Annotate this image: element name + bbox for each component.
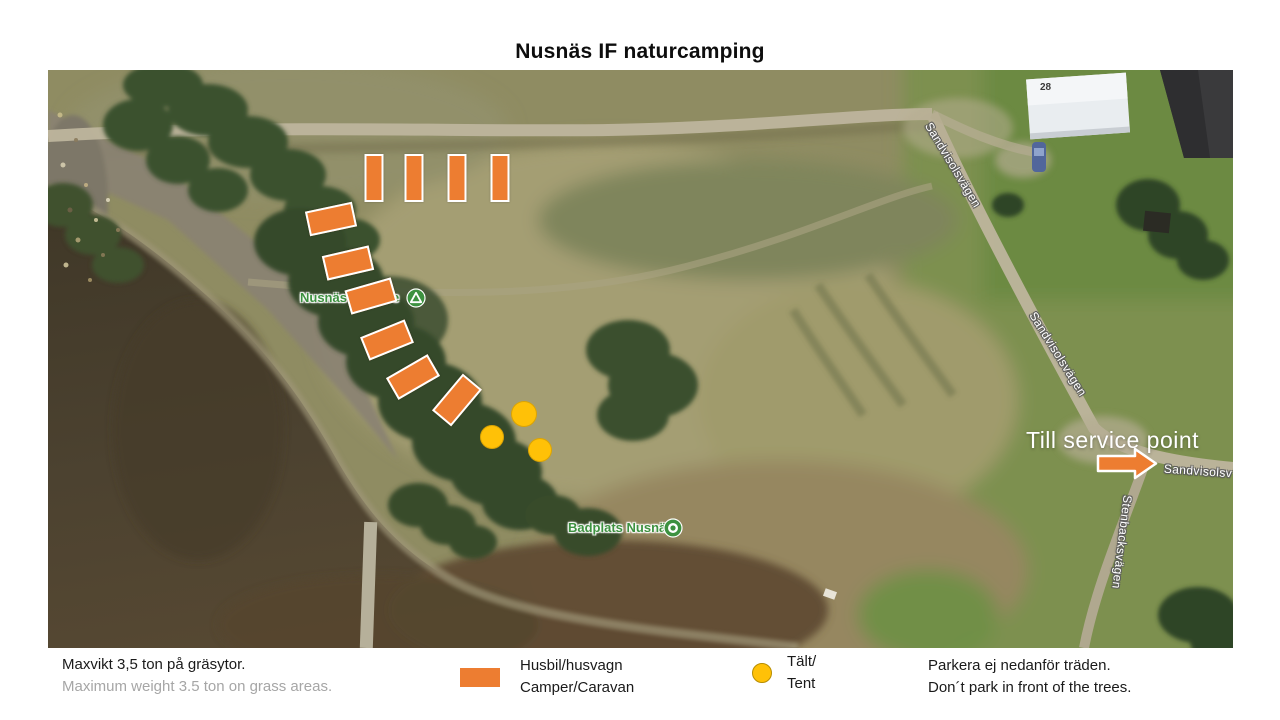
camper-spot [491, 154, 510, 202]
service-point-arrow-icon [1088, 442, 1168, 486]
legend-tent-sv: Tält/ [787, 651, 816, 673]
legend: Maxvikt 3,5 ton på gräsytor. Maximum wei… [0, 648, 1280, 720]
page-title: Nusnäs IF naturcamping [0, 40, 1280, 64]
legend-no-park-sv: Parkera ej nedanför träden. [928, 655, 1111, 677]
tent-spot [528, 438, 552, 462]
map-overlays: Nusnäs e Badplats Nusnäs 28 Till service… [48, 70, 1233, 648]
road-label: Sandvisolsvägen [1026, 309, 1089, 398]
camper-spot [405, 154, 424, 202]
camper-spot [365, 154, 384, 202]
house-number-label: 28 [1040, 82, 1051, 93]
legend-tent-en: Tent [787, 673, 815, 695]
tent-spot [511, 401, 537, 427]
road-label: Stenbacksvägen [1109, 494, 1134, 589]
legend-max-weight-en: Maximum weight 3.5 ton on grass areas. [62, 676, 332, 698]
camper-legend-swatch [460, 668, 500, 687]
camper-spot [322, 245, 374, 280]
legend-max-weight-sv: Maxvikt 3,5 ton på gräsytor. [62, 654, 245, 676]
camper-spot [360, 319, 414, 360]
camper-spot [432, 374, 482, 427]
campground-icon [406, 288, 426, 308]
tent-spot [480, 425, 504, 449]
tent-legend-dot [752, 663, 772, 683]
legend-no-park-en: Don´t park in front of the trees. [928, 677, 1131, 699]
poi-label-nusnas: Nusnäs [300, 290, 347, 305]
camper-spot [344, 277, 397, 314]
map: Nusnäs e Badplats Nusnäs 28 Till service… [48, 70, 1233, 648]
camper-spot [386, 354, 440, 400]
legend-camper-en: Camper/Caravan [520, 677, 634, 699]
road-label: Sandvisolsv [1163, 462, 1232, 481]
road-label: Sandvisolsvägen [922, 120, 984, 210]
camper-spot [448, 154, 467, 202]
camper-spot [305, 202, 357, 236]
legend-camper-sv: Husbil/husvagn [520, 655, 623, 677]
poi-label-badplats: Badplats Nusnäs [568, 520, 673, 535]
swimming-icon [663, 518, 683, 538]
